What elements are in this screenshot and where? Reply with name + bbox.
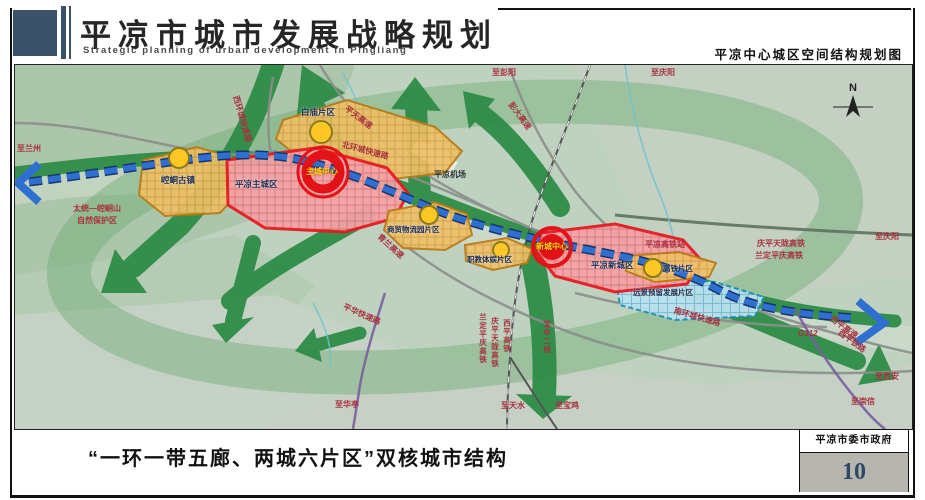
map-label: 宝中二线 xyxy=(543,320,551,354)
map-label: 至兰州 xyxy=(17,145,41,153)
map-label: 至庆阳 xyxy=(651,69,675,77)
map-label: G312 xyxy=(798,330,818,338)
map-label: 兰定平庆高铁 xyxy=(479,313,487,364)
map-label: 至彭阳 xyxy=(492,69,516,77)
title-block-square xyxy=(13,10,57,56)
map-label: 平凉高铁站 xyxy=(645,241,685,249)
page-frame-top-line xyxy=(498,8,911,10)
map-label: 至崇信 xyxy=(851,398,875,406)
zone-label: 平凉主城区 xyxy=(235,180,278,189)
zone-label: 远景预留发展片区 xyxy=(633,289,693,297)
map-label: 至庆阳 xyxy=(875,233,899,241)
title-bar-decoration-thin xyxy=(69,6,71,59)
title-block-info: 平凉市委市政府 10 xyxy=(799,429,909,492)
title-bar-decoration xyxy=(61,6,66,59)
agency-name: 平凉市委市政府 xyxy=(800,430,908,453)
zone-label: 平凉新城区 xyxy=(591,261,634,270)
map-label: 至华亭 xyxy=(335,401,359,409)
zone-label: 商贸物流园片区 xyxy=(387,226,440,234)
map-label: 自然保护区 xyxy=(77,217,117,225)
map-label: 至宝鸡 xyxy=(555,402,579,410)
page-subtitle-en: Strategic planning of urban development … xyxy=(83,45,407,56)
map-label: 平凉机场 xyxy=(434,171,466,179)
map-label: 兰定平庆高铁 xyxy=(755,252,803,260)
zone-label: 职教体娱片区 xyxy=(467,256,512,264)
center-label: 主城中心 xyxy=(306,168,338,176)
map-label: 庆平天陇高铁 xyxy=(491,317,499,368)
zone-label: 高铁片区 xyxy=(663,265,693,273)
map-caption: “一环一带五廊、两城六片区”双核城市结构 xyxy=(88,442,508,471)
map-label: 西平高铁 xyxy=(503,319,511,353)
planning-map: N 至兰州 太统—崆峒山 自然保护区 西环城快速路 平天高速 北环城快速路 至彭… xyxy=(14,64,913,430)
map-label: 至天水 xyxy=(501,402,525,410)
map-title: 平凉中心城区空间结构规划图 xyxy=(714,44,903,63)
center-label: 新城中心 xyxy=(536,243,568,251)
map-label: 庆平天陇高铁 xyxy=(757,240,805,248)
svg-text:N: N xyxy=(849,82,857,94)
zone-label: 白庙片区 xyxy=(301,108,335,117)
map-label: 太统—崆峒山 xyxy=(73,205,121,213)
map-label: 至西安 xyxy=(875,373,899,381)
zone-label: 崆峒古镇 xyxy=(161,176,195,185)
page-number: 10 xyxy=(800,453,908,492)
